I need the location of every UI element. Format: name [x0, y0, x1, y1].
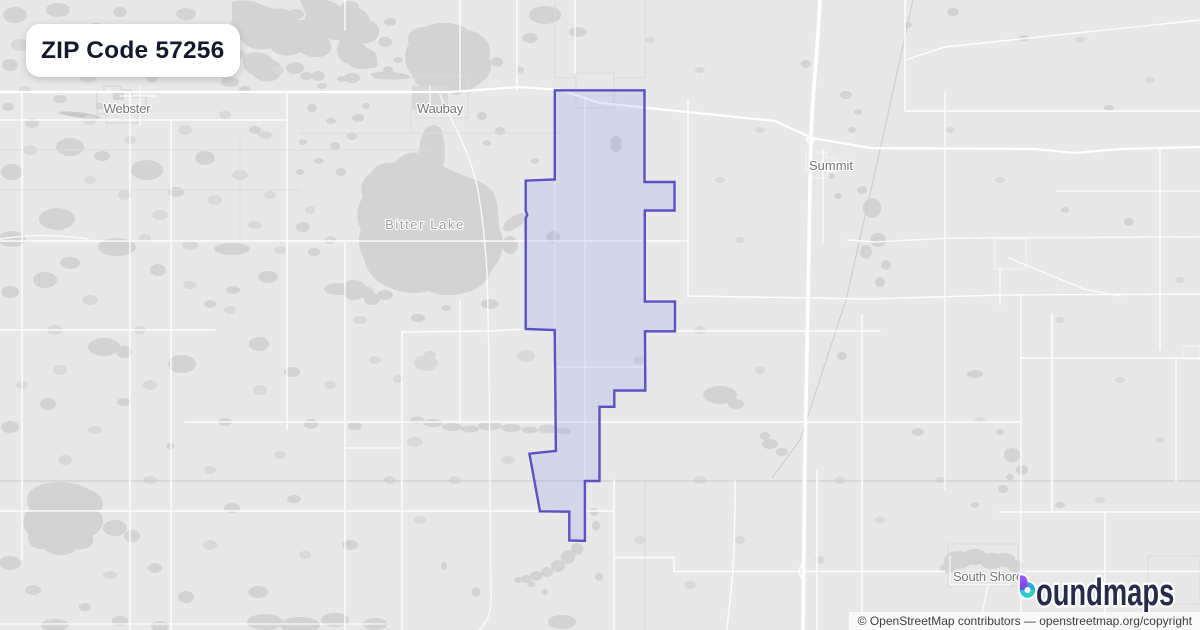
svg-text:Summit: Summit: [809, 158, 853, 173]
svg-text:Webster: Webster: [104, 101, 152, 116]
svg-text:Waubay: Waubay: [417, 101, 464, 116]
svg-text:South Shore: South Shore: [953, 569, 1023, 584]
svg-text:oundmaps: oundmaps: [1036, 572, 1174, 612]
svg-text:Bitter Lake: Bitter Lake: [385, 217, 465, 232]
